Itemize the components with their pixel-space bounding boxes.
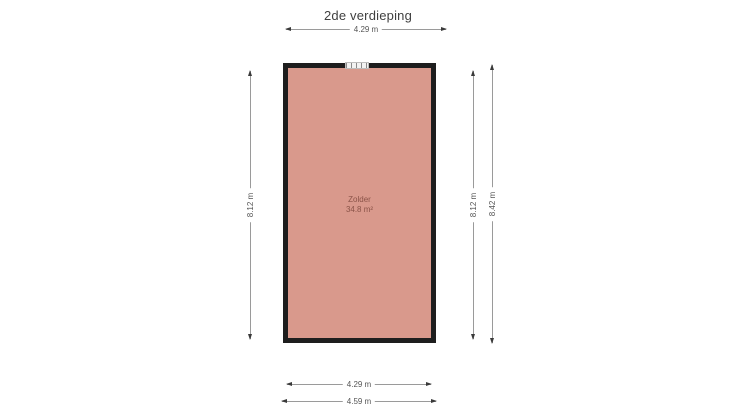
dimension-bottom-outer: 4.59 m (281, 397, 437, 406)
dimension-left: 8.12 m (246, 70, 255, 340)
room-label: Zolder 34.8 m² (346, 195, 373, 216)
room-area: 34.8 m² (346, 205, 373, 215)
room-name: Zolder (346, 195, 373, 205)
arrow-right-icon (431, 399, 437, 403)
arrow-right-icon (441, 27, 447, 31)
dimension-right-outer-label: 8.42 m (489, 187, 497, 221)
floor-title: 2de verdieping (0, 8, 736, 23)
arrow-left-icon (285, 27, 291, 31)
arrow-down-icon (471, 334, 475, 340)
dimension-left-label: 8.12 m (247, 188, 255, 222)
arrow-up-icon (471, 70, 475, 76)
dimension-bottom-inner: 4.29 m (286, 380, 432, 389)
arrow-up-icon (490, 64, 494, 70)
arrow-down-icon (248, 334, 252, 340)
arrow-left-icon (281, 399, 287, 403)
floorplan-canvas: 2de verdieping 4.29 m Zolder 34.8 m² 8.1… (0, 0, 736, 414)
dimension-right-inner: 8.12 m (469, 70, 478, 340)
dimension-right-inner-label: 8.12 m (470, 188, 478, 222)
room-zolder: Zolder 34.8 m² (283, 63, 436, 343)
dimension-top: 4.29 m (285, 25, 447, 34)
arrow-left-icon (286, 382, 292, 386)
dimension-bottom-outer-label: 4.59 m (343, 398, 375, 406)
arrow-right-icon (426, 382, 432, 386)
arrow-down-icon (490, 338, 494, 344)
window-icon (345, 62, 369, 69)
dimension-right-outer: 8.42 m (488, 64, 497, 344)
dimension-bottom-inner-label: 4.29 m (343, 381, 375, 389)
dimension-top-label: 4.29 m (350, 26, 382, 34)
arrow-up-icon (248, 70, 252, 76)
